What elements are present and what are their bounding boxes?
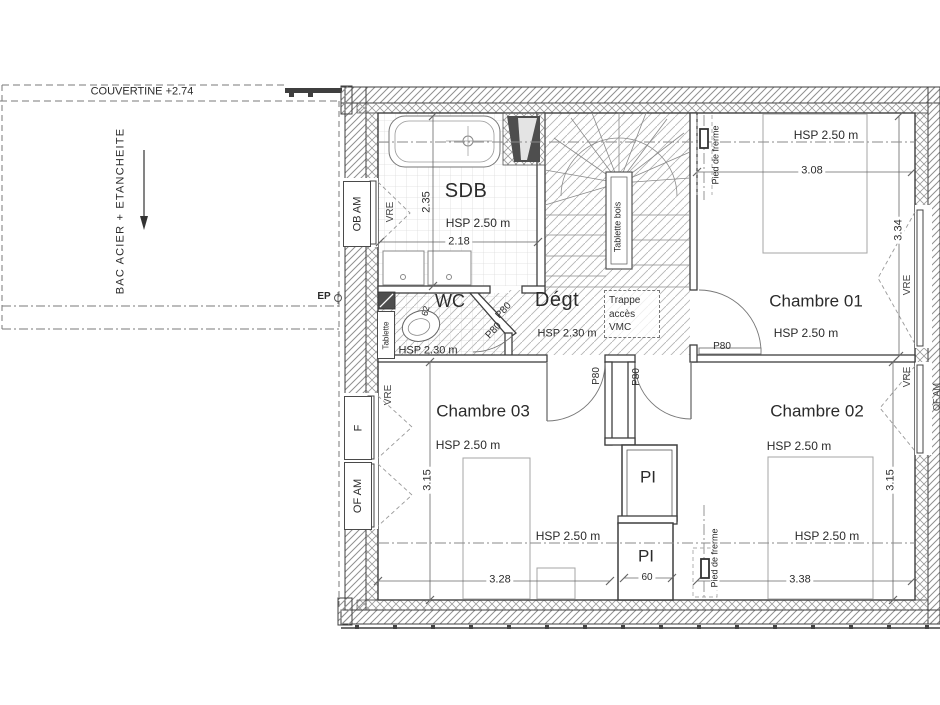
door-p80-ch01: P80 [713,342,731,352]
sdb-hsp-label: HSP 2.50 m [446,217,510,229]
ch03-hsp-bottom: HSP 2.50 m [536,530,600,542]
ch01-hsp-top: HSP 2.50 m [794,129,858,141]
slope-arrow-icon [140,150,148,230]
vre-sdb-label: VRE [386,202,396,223]
parapet-detail [285,88,342,97]
joinery-ob-am: OB AM [343,181,371,247]
ch02-hsp-bottom: HSP 2.50 m [795,530,859,542]
dim-pi-width: 60 [638,573,655,583]
degt-hsp-label: HSP 2.30 m [537,329,596,340]
duct-chimney [503,113,545,165]
dim-ch03-depth: 3.15 [423,466,434,493]
ch03-hsp-top: HSP 2.50 m [436,439,500,451]
dim-ch01-width: 3.08 [798,166,825,177]
pied-de-ferme-top-label: Pied de frerme [712,125,721,184]
ch01-hsp-bottom: HSP 2.50 m [774,327,838,339]
door-p80-ch03: P80 [592,367,602,385]
dim-sdb-depth: 2.35 [422,191,433,212]
room-degt-label: Dégt [535,290,579,310]
couvertine-label: COUVERTINE +2.74 [91,87,194,98]
roof-area [0,85,341,610]
wc-hsp-label: HSP 2.30 m [398,346,457,357]
vre-ch02-label: VRE [903,367,913,388]
dim-ch02-width: 3.38 [786,575,813,586]
placard-pi-bottom-label: PI [638,548,654,565]
ep-symbol-icon [335,292,342,304]
room-wc-label: WC [435,292,465,310]
room-ch01-label: Chambre 01 [769,293,863,310]
room-sdb-label: SDB [445,181,488,201]
floor-plan: COUVERTINE +2.74 BAC ACIER + ETANCHEITE … [0,0,940,705]
room-ch02-label: Chambre 02 [770,403,864,420]
vre-ch01-label: VRE [903,275,913,296]
tablette-bois-label: Tablette bois [614,202,623,253]
placard-pi-top-label: PI [640,469,656,486]
trappe-acces-vmc-box: Trappe accès VMC [604,290,660,338]
bathtub [389,116,500,167]
room-ch03-label: Chambre 03 [436,403,530,420]
joinery-of-am: OF AM [344,462,372,530]
door-p80-ch02: P80 [632,368,642,386]
joinery-f: F [344,396,372,460]
ch02-hsp-top: HSP 2.50 m [767,440,831,452]
bac-acier-label: BAC ACIER + ETANCHEITE [116,128,127,294]
dim-ch01-depth: 3.34 [894,216,905,243]
dim-sdb-width: 2.18 [445,237,472,248]
tablette-wc-box: Tablette [377,311,395,359]
dim-ch02-depth: 3.15 [886,466,897,493]
pied-de-ferme-bottom-label: Pied de frerme [711,525,720,590]
floorplan-linework [0,0,940,705]
vre-ch03-label: VRE [384,385,394,406]
ep-label: EP [317,292,330,302]
dim-ch03-width: 3.28 [486,575,513,586]
joinery-of-am-right-clipped: OF AM [933,383,940,411]
